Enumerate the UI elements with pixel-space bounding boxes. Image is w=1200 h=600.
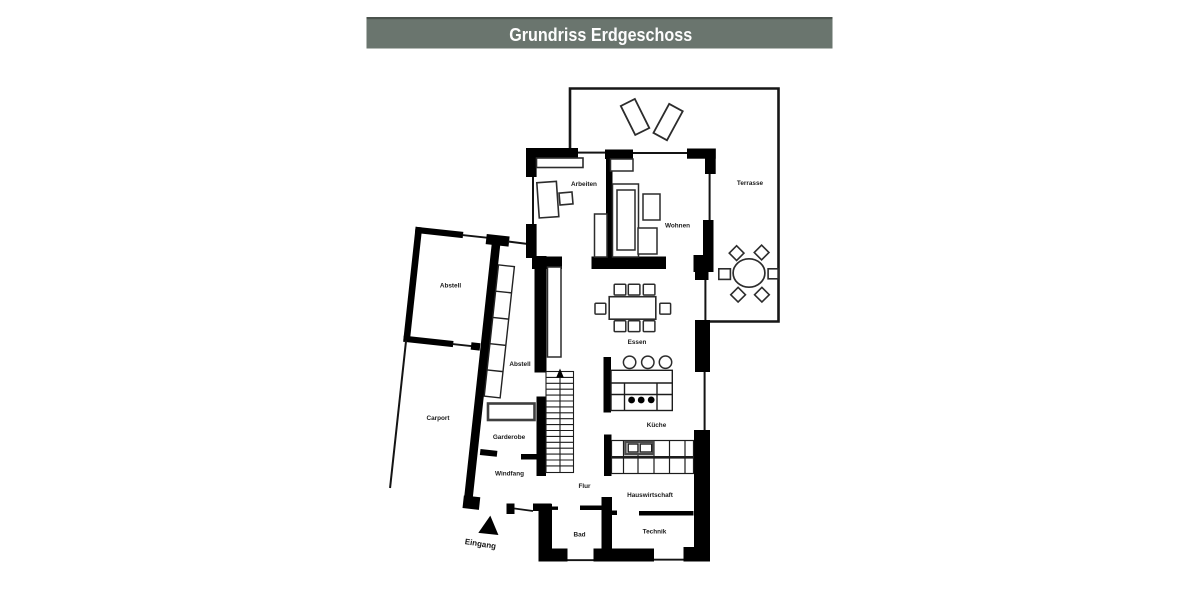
svg-text:Flur: Flur [578,483,591,490]
svg-text:Grundriss Erdgeschoss: Grundriss Erdgeschoss [509,24,692,45]
svg-text:Wohnen: Wohnen [665,222,690,229]
svg-text:Carport: Carport [426,415,450,422]
svg-text:Windfang: Windfang [495,471,524,478]
svg-text:Eingang: Eingang [464,537,497,551]
svg-text:Terrasse: Terrasse [737,180,764,187]
svg-text:Essen: Essen [628,339,647,346]
svg-text:Technik: Technik [643,529,667,536]
svg-text:Garderobe: Garderobe [493,434,526,441]
svg-text:Hauswirtschaft: Hauswirtschaft [627,492,674,499]
svg-text:Arbeiten: Arbeiten [571,181,597,188]
svg-text:Bad: Bad [573,532,585,539]
svg-text:Abstell: Abstell [440,282,462,289]
svg-text:Küche: Küche [647,422,667,429]
svg-text:Abstell: Abstell [509,361,531,368]
